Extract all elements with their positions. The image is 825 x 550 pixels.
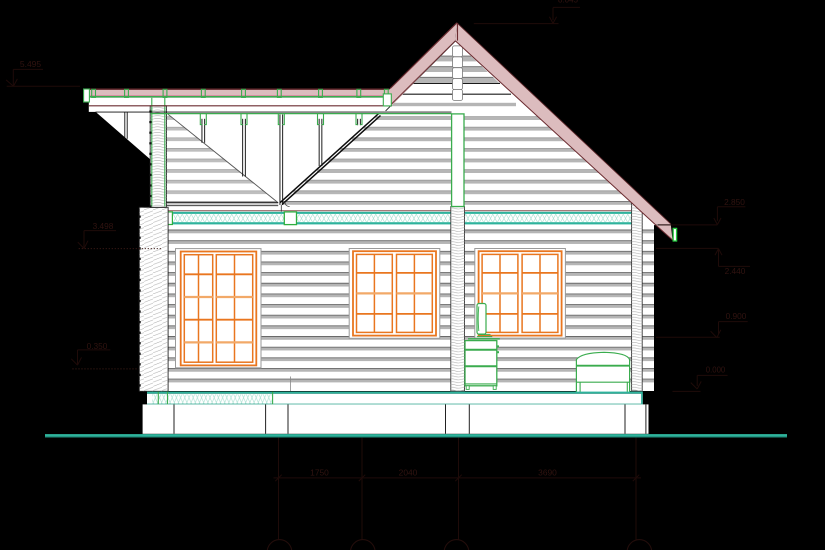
svg-text:3690: 3690 <box>538 468 557 478</box>
svg-text:2040: 2040 <box>399 468 418 478</box>
svg-text:1750: 1750 <box>310 468 329 478</box>
svg-text:0.000: 0.000 <box>706 366 726 375</box>
svg-text:5.495: 5.495 <box>20 59 42 69</box>
svg-text:2.850: 2.850 <box>724 197 745 207</box>
svg-text:8.045: 8.045 <box>558 0 579 5</box>
svg-text:2.440: 2.440 <box>725 266 746 276</box>
svg-text:3.498: 3.498 <box>93 221 114 231</box>
svg-text:0.900: 0.900 <box>726 311 747 321</box>
